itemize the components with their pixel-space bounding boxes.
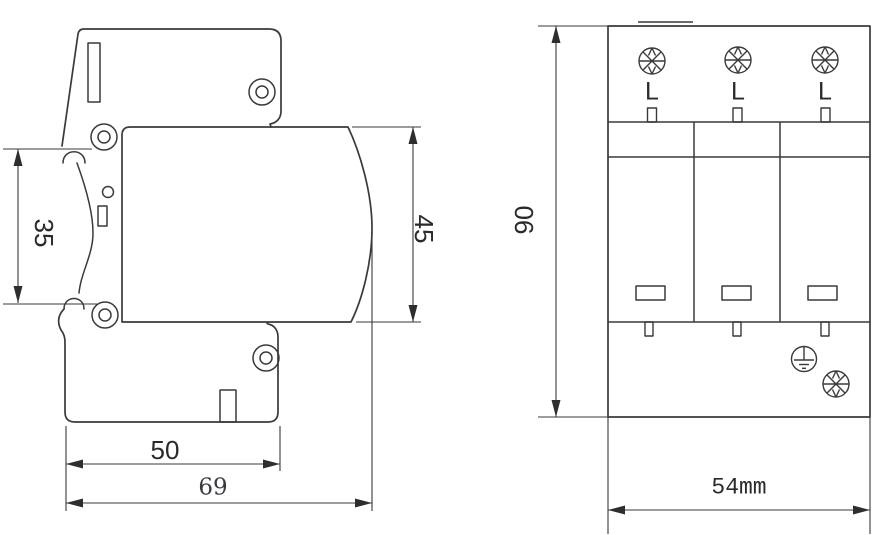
side-main-body — [122, 127, 372, 322]
terminal-label-l3: L — [818, 80, 832, 105]
mounting-hole-icon — [249, 79, 275, 105]
dim-label-rail-height: 35 — [31, 219, 57, 248]
module-window — [636, 286, 665, 300]
side-clip-pin — [103, 187, 114, 198]
mounting-hole-icon — [92, 302, 118, 328]
dim-label-total-width: 54mm — [711, 477, 766, 500]
terminal-tab — [648, 108, 657, 122]
module-release-tab — [821, 322, 829, 336]
dimension-69 — [66, 231, 372, 511]
mounting-hole-icon — [91, 124, 117, 150]
earth-terminal-icon — [792, 347, 817, 372]
dim-label-body-depth: 50 — [151, 437, 180, 463]
module-window — [808, 286, 837, 300]
terminal-tab — [733, 108, 742, 122]
mounting-hole-icon — [253, 345, 279, 371]
module-release-tab — [645, 322, 653, 336]
terminal-label-l1: L — [645, 80, 659, 105]
side-view-drawing — [59, 29, 372, 422]
terminal-tab — [821, 108, 830, 122]
dim-label-total-depth: 69 — [198, 477, 227, 500]
module-window — [722, 286, 751, 300]
dim-label-total-height: 90 — [511, 206, 537, 235]
side-view-dimensions — [3, 127, 421, 511]
screw-head-icon — [812, 47, 838, 73]
side-clip-slot — [98, 206, 107, 226]
module-release-tab — [733, 322, 741, 336]
screw-head-icon — [639, 48, 665, 74]
technical-drawing-canvas — [0, 0, 890, 535]
side-bottom-slot — [220, 390, 236, 422]
dim-label-body-height: 45 — [411, 215, 437, 244]
side-lower-block — [59, 309, 278, 422]
dimension-90 — [538, 26, 608, 417]
din-spring-clip — [77, 163, 93, 293]
side-top-slot — [88, 43, 100, 102]
din-hook-top — [63, 152, 85, 163]
screw-head-icon — [823, 371, 849, 397]
screw-head-icon — [725, 47, 751, 73]
terminal-label-l2: L — [731, 80, 745, 105]
dimensional-drawing-page: 35 45 50 69 90 54mm L L L — [0, 0, 890, 535]
